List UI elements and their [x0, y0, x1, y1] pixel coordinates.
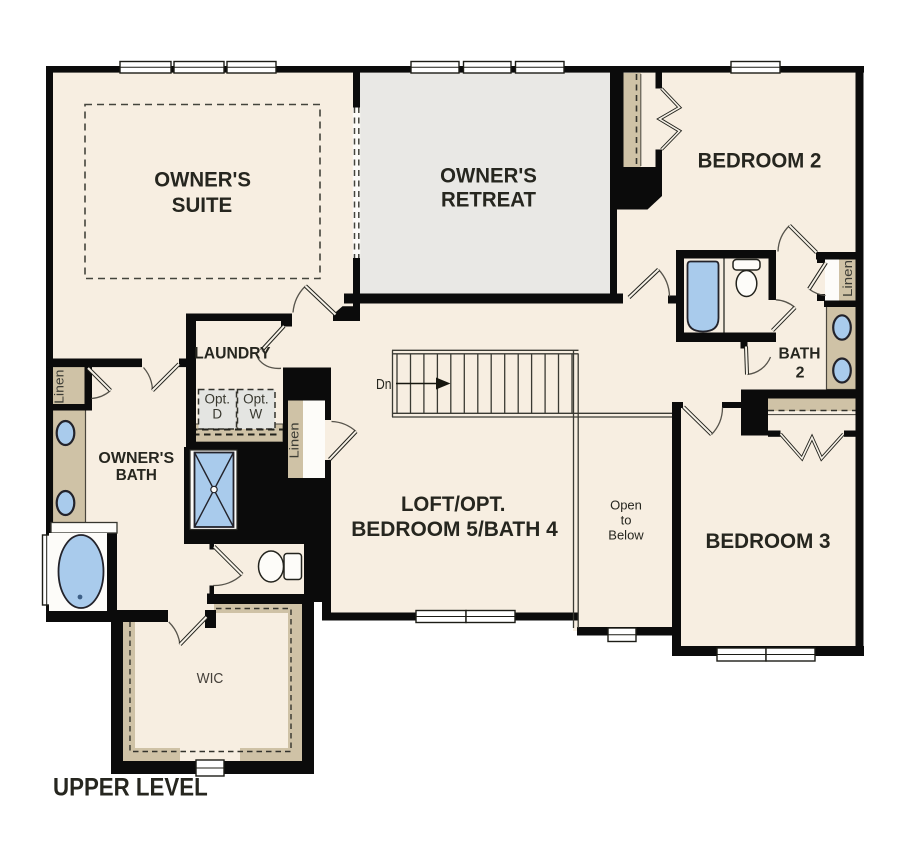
- svg-text:Linen: Linen: [52, 370, 67, 404]
- svg-text:D: D: [212, 407, 222, 422]
- svg-text:BATH: BATH: [779, 345, 821, 362]
- svg-text:BEDROOM 2: BEDROOM 2: [698, 150, 822, 173]
- svg-text:OWNER'S: OWNER'S: [154, 169, 251, 192]
- svg-text:Opt.: Opt.: [205, 392, 231, 407]
- svg-text:Linen: Linen: [840, 260, 855, 297]
- svg-text:BEDROOM 3: BEDROOM 3: [706, 530, 831, 553]
- svg-text:BATH: BATH: [116, 467, 157, 484]
- svg-text:Below: Below: [608, 528, 644, 543]
- svg-text:RETREAT: RETREAT: [441, 189, 536, 212]
- svg-text:LOFT/OPT.: LOFT/OPT.: [401, 493, 506, 516]
- svg-text:Opt.: Opt.: [243, 392, 269, 407]
- svg-text:Open: Open: [610, 498, 642, 513]
- svg-text:2: 2: [796, 364, 805, 381]
- svg-text:UPPER LEVEL: UPPER LEVEL: [53, 774, 208, 802]
- svg-text:LAUNDRY: LAUNDRY: [194, 344, 270, 362]
- svg-text:to: to: [621, 513, 632, 528]
- svg-text:Linen: Linen: [287, 423, 302, 459]
- svg-text:SUITE: SUITE: [172, 194, 232, 217]
- svg-text:WIC: WIC: [197, 670, 224, 687]
- svg-text:BEDROOM 5/BATH 4: BEDROOM 5/BATH 4: [351, 518, 558, 541]
- svg-text:Dn: Dn: [376, 377, 392, 393]
- svg-text:OWNER'S: OWNER'S: [440, 165, 537, 188]
- svg-text:W: W: [250, 407, 263, 422]
- svg-text:OWNER'S: OWNER'S: [98, 450, 174, 467]
